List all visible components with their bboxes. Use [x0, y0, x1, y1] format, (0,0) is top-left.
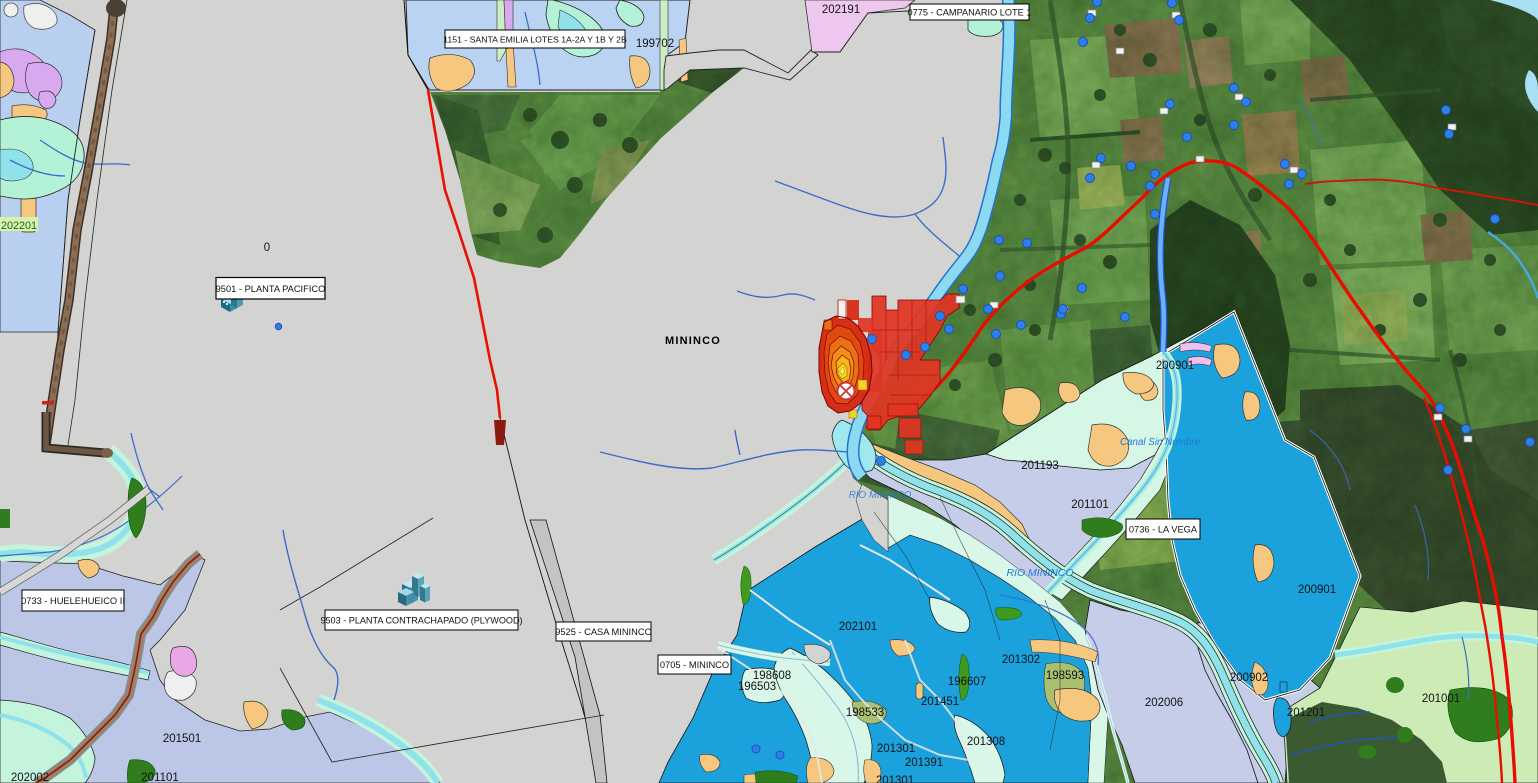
- svg-text:202101: 202101: [839, 621, 877, 633]
- svg-text:9503 - PLANTA CONTRACHAPADO (P: 9503 - PLANTA CONTRACHAPADO (PLYWOOD): [320, 616, 522, 626]
- svg-text:9525 - CASA MININCO: 9525 - CASA MININCO: [555, 627, 652, 637]
- svg-text:0775 - CAMPANARIO LOTE 1: 0775 - CAMPANARIO LOTE 1: [908, 8, 1032, 18]
- svg-text:0: 0: [264, 242, 270, 254]
- svg-text:200902: 200902: [1230, 672, 1268, 684]
- svg-text:201308: 201308: [967, 736, 1005, 748]
- svg-text:RIO MININCO: RIO MININCO: [1006, 567, 1073, 579]
- svg-text:201201: 201201: [1287, 707, 1325, 719]
- svg-text:202002: 202002: [11, 772, 49, 783]
- svg-text:198533: 198533: [846, 707, 884, 719]
- svg-text:196607: 196607: [948, 676, 986, 688]
- svg-text:201301: 201301: [876, 775, 914, 783]
- svg-text:202201: 202201: [1, 220, 37, 232]
- svg-text:202191: 202191: [822, 4, 860, 16]
- svg-text:201391: 201391: [905, 757, 943, 769]
- svg-text:200901: 200901: [1298, 584, 1336, 596]
- svg-text:201001: 201001: [1422, 693, 1460, 705]
- svg-text:0705 - MININCO: 0705 - MININCO: [660, 660, 729, 670]
- svg-text:9501 - PLANTA PACIFICO: 9501 - PLANTA PACIFICO: [216, 284, 326, 294]
- svg-text:201101: 201101: [1071, 499, 1109, 511]
- svg-text:0733 - HUELEHUEICO II: 0733 - HUELEHUEICO II: [21, 596, 125, 606]
- svg-text:201193: 201193: [1021, 460, 1059, 472]
- svg-text:201301: 201301: [877, 743, 915, 755]
- svg-text:201451: 201451: [921, 696, 959, 708]
- svg-text:198593: 198593: [1046, 670, 1084, 682]
- svg-text:1151 - SANTA EMILIA LOTES 1A-2: 1151 - SANTA EMILIA LOTES 1A-2A Y 1B Y 2…: [443, 35, 627, 45]
- svg-text:201101: 201101: [141, 772, 179, 783]
- svg-text:RIO MININCO: RIO MININCO: [849, 490, 912, 501]
- svg-text:201302: 201302: [1002, 654, 1040, 666]
- svg-text:201501: 201501: [163, 733, 201, 745]
- svg-text:MININCO: MININCO: [665, 335, 721, 347]
- svg-text:196503: 196503: [738, 681, 776, 693]
- svg-text:0736 - LA VEGA: 0736 - LA VEGA: [1129, 525, 1198, 535]
- svg-text:202006: 202006: [1145, 697, 1183, 709]
- svg-text:199702: 199702: [636, 38, 674, 50]
- svg-text:Canal Sin Nombre: Canal Sin Nombre: [1120, 437, 1201, 448]
- svg-text:200901: 200901: [1156, 360, 1194, 372]
